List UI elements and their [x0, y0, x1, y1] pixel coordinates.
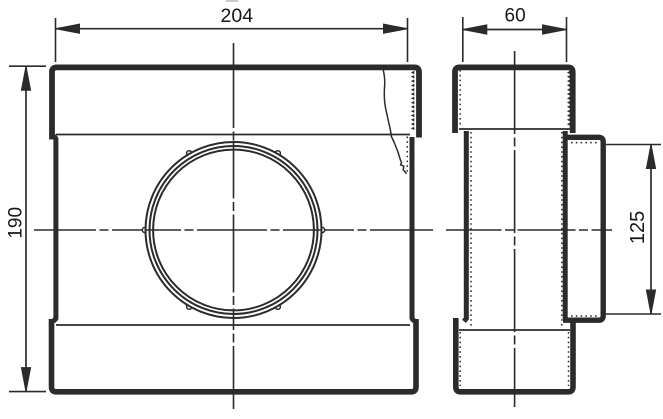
svg-text:190: 190 — [6, 207, 27, 239]
svg-text:60: 60 — [505, 6, 526, 27]
svg-text:204: 204 — [221, 5, 254, 27]
svg-text:125: 125 — [627, 211, 649, 244]
